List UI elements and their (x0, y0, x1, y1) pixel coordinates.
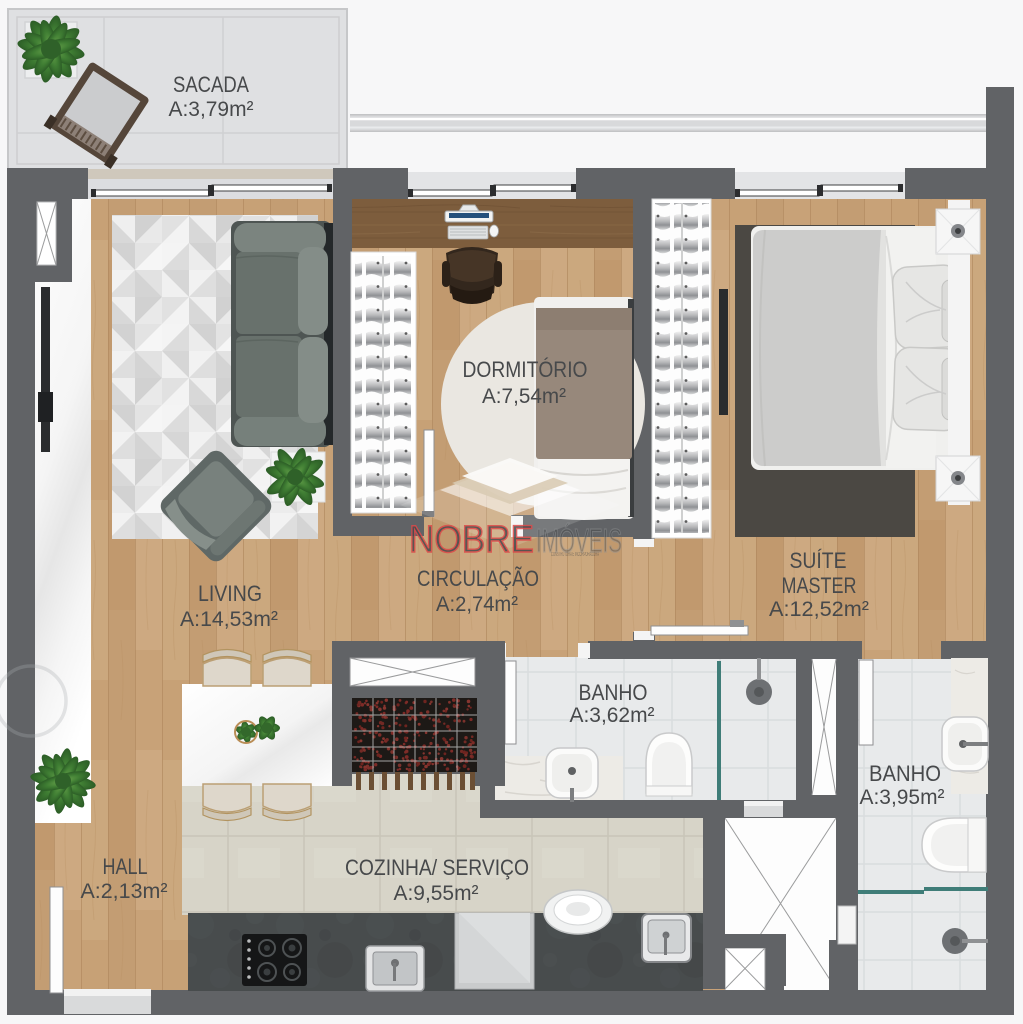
svg-text:BANHO: BANHO (579, 680, 648, 705)
svg-text:A:2,13m²: A:2,13m² (81, 880, 168, 903)
svg-text:A:14,53m²: A:14,53m² (180, 608, 278, 631)
svg-text:A:7,54m²: A:7,54m² (482, 385, 566, 408)
svg-text:MASTER: MASTER (782, 573, 857, 598)
svg-text:A:9,55m²: A:9,55m² (394, 882, 479, 905)
svg-text:BANHO: BANHO (869, 761, 941, 786)
svg-text:A:2,74m²: A:2,74m² (436, 593, 518, 616)
svg-text:A:3,62m²: A:3,62m² (570, 704, 655, 727)
svg-text:LIVING: LIVING (198, 581, 262, 606)
svg-text:COZINHA/ SERVIÇO: COZINHA/ SERVIÇO (345, 855, 529, 880)
svg-text:DORMITÓRIO: DORMITÓRIO (463, 357, 588, 382)
svg-text:A:3,95m²: A:3,95m² (860, 786, 945, 809)
svg-text:HALL: HALL (103, 854, 148, 879)
svg-text:NOBRE: NOBRE (409, 519, 534, 561)
svg-text:A:12,52m²: A:12,52m² (769, 598, 869, 621)
svg-text:SACADA: SACADA (173, 72, 249, 97)
svg-text:CONSTRUTORA E INCORPORADORA: CONSTRUTORA E INCORPORADORA (551, 552, 599, 558)
svg-text:SUÍTE: SUÍTE (790, 548, 847, 573)
svg-text:A:3,79m²: A:3,79m² (169, 98, 254, 121)
svg-text:CIRCULAÇÃO: CIRCULAÇÃO (417, 566, 539, 591)
